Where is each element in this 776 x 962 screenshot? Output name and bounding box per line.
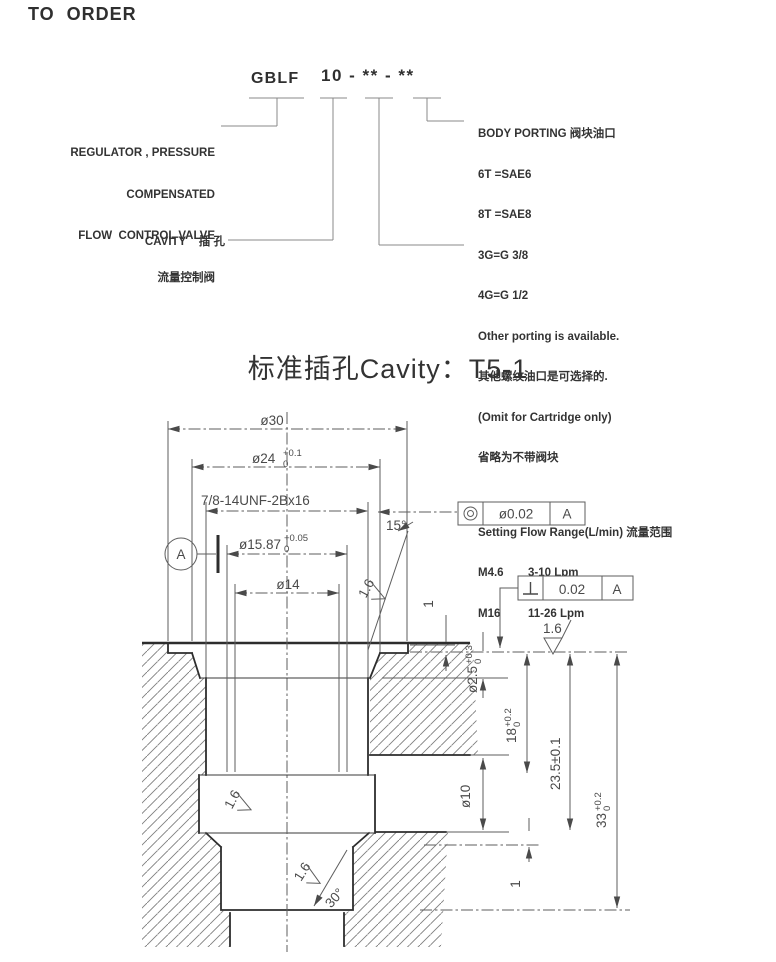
order-code-connectors <box>221 98 464 245</box>
dim-d24: ø24 <box>252 451 276 466</box>
roughness-value: 1.6 <box>355 577 377 601</box>
dim-d25: ø2.5 <box>465 666 480 693</box>
dim-d10: ø10 <box>458 785 473 808</box>
roughness-value: 1.6 <box>291 860 314 884</box>
dim-18: 18 <box>504 728 519 743</box>
roughness-symbol-bore: 1.6 <box>221 788 255 818</box>
cavity-drawing: A ø0.02 A 0.02 A 1.6 1.6 <box>0 0 776 962</box>
roughness-value: 1.6 <box>221 788 243 812</box>
dim-30deg: 30° <box>322 885 347 910</box>
perpendicularity-frame: 0.02 A <box>500 576 633 648</box>
dim-33: 33 <box>594 813 609 828</box>
dim-d24-tol-upper: +0.1 <box>283 448 302 459</box>
dim-thread: 7/8-14UNF-2Bx16 <box>201 493 310 508</box>
dim-18-group: 18 +0.2 0 <box>503 708 523 743</box>
page: TO ORDER GBLF 10 - ** - ** REGULATOR , P… <box>0 0 776 962</box>
concentricity-datum: A <box>562 507 571 522</box>
perpendicularity-datum: A <box>612 582 621 597</box>
dim-d30: ø30 <box>260 413 283 428</box>
dim-235: 23.5±0.1 <box>548 738 563 790</box>
perpendicularity-value: 0.02 <box>559 582 585 597</box>
dim-d1587-tol-upper: +0.05 <box>284 533 308 544</box>
dim-step1: 1 <box>508 880 523 888</box>
concentricity-value: ø0.02 <box>499 507 534 522</box>
taper-line-15deg <box>368 531 408 650</box>
dim-d25-tol-lower: 0 <box>473 659 484 664</box>
dim-33-tol-lower: 0 <box>602 806 613 811</box>
roughness-symbol-lower: 1.6 <box>291 860 326 891</box>
dim-d1587-tol-lower: 0 <box>284 544 289 555</box>
dim-18-tol-lower: 0 <box>512 722 523 727</box>
dim-d24-tol-lower: 0 <box>283 459 288 470</box>
dim-15deg: 15° <box>386 518 406 533</box>
hatch-right-block-upper <box>370 643 478 755</box>
roughness-value: 1.6 <box>543 621 562 636</box>
concentricity-frame: ø0.02 A <box>458 502 585 525</box>
perpendicularity-leader <box>500 588 518 648</box>
hatch-right-block-lower <box>344 832 448 947</box>
roughness-symbol-seat: 1.6 <box>543 620 571 654</box>
extension-lines <box>168 421 509 832</box>
dim-d14: ø14 <box>276 577 300 592</box>
dim-33-group: 33 +0.2 0 <box>593 792 613 828</box>
datum-a-label: A <box>176 547 185 562</box>
dim-depth1: 1 <box>421 600 436 608</box>
dim-d1587: ø15.87 <box>239 537 281 552</box>
hatch-left-block <box>142 643 230 947</box>
